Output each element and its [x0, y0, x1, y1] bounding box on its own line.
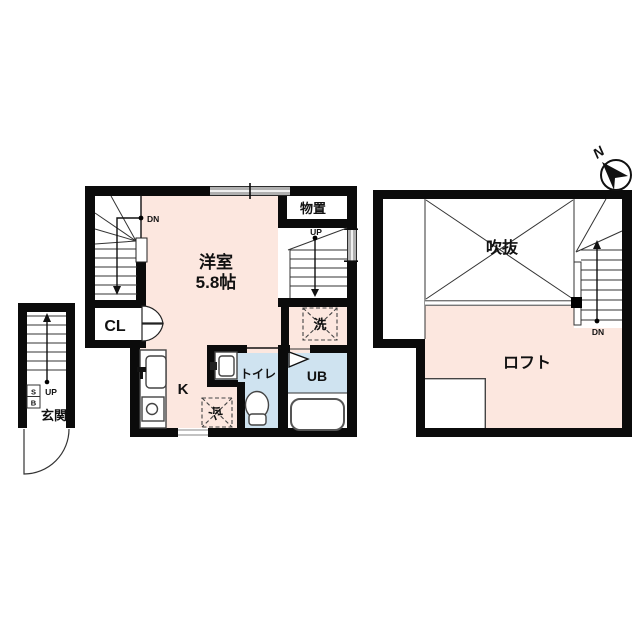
label-bath: UB: [307, 368, 327, 384]
kitchen-counter: [137, 350, 166, 428]
stair-railing-2f: [574, 262, 581, 325]
wall-toilet-bath: [278, 345, 288, 437]
shoebox: S B: [27, 385, 40, 408]
wall-toilet-jog: [207, 380, 238, 387]
vent-bottom-1f: [178, 428, 208, 437]
label-dn-1f: DN: [147, 214, 159, 224]
label-up-entrance: UP: [45, 387, 57, 397]
label-kitchen: K: [178, 381, 189, 398]
wall-top-2f: [373, 190, 632, 199]
kitchen-faucet: [137, 367, 146, 372]
wall-closet-bottom: [85, 340, 146, 348]
wall-stairwell: [136, 262, 146, 300]
label-dn-2f: DN: [592, 327, 604, 337]
wall-fridge-nook: [237, 382, 245, 437]
wall-entrance-right: [66, 303, 75, 428]
loft-cutout: [425, 378, 486, 428]
label-room-size: 5.8帖: [196, 272, 237, 292]
bathtub: [291, 399, 344, 430]
label-shoebox-s: S: [31, 388, 36, 397]
wall-left-2f: [373, 190, 383, 348]
label-toilet: トイレ: [240, 367, 276, 381]
floorplan-drawing: DN UP: [0, 0, 640, 640]
void-divider: [425, 300, 576, 306]
label-shoebox-b: B: [31, 399, 37, 408]
wall-right-1f: [347, 186, 357, 437]
wall-right-2f: [622, 190, 632, 437]
kitchen-sink: [146, 356, 166, 388]
toilet-faucet: [210, 362, 217, 370]
stair-door: [136, 238, 147, 262]
wall-closet-top: [85, 300, 146, 308]
wall-left-kitchen: [130, 348, 140, 437]
label-room-1f: 洋室: [199, 252, 233, 272]
entrance-door-arc: [24, 429, 69, 474]
wall-sanitary-c: [310, 345, 347, 353]
entrance-block: S B UP 玄関: [18, 303, 75, 474]
wall-left-1f: [85, 186, 95, 348]
wall-step-v-2f: [416, 339, 425, 437]
wall-upstairs-bottom: [278, 298, 347, 307]
plan-floor1: DN UP: [85, 183, 358, 437]
label-void: 吹抜: [486, 238, 519, 257]
label-up-1f: UP: [310, 227, 322, 237]
stairwell-1f: [95, 195, 141, 300]
wall-washer-nook: [281, 307, 289, 345]
plan-floor2: DN 吹抜 ロフト: [373, 190, 632, 437]
wall-bottom-2f: [416, 428, 632, 437]
wall-storage-left: [278, 195, 287, 223]
label-north: N: [590, 142, 608, 161]
compass: N: [590, 142, 631, 190]
label-loft: ロフト: [503, 355, 551, 372]
floorplan-page: DN UP: [0, 0, 640, 640]
label-closet: CL: [104, 318, 126, 335]
label-entrance: 玄関: [41, 408, 67, 423]
stair-post-2f: [571, 297, 582, 308]
label-storage: 物置: [300, 201, 326, 216]
wall-entrance-left: [18, 303, 27, 428]
label-washer: 洗: [313, 317, 326, 332]
